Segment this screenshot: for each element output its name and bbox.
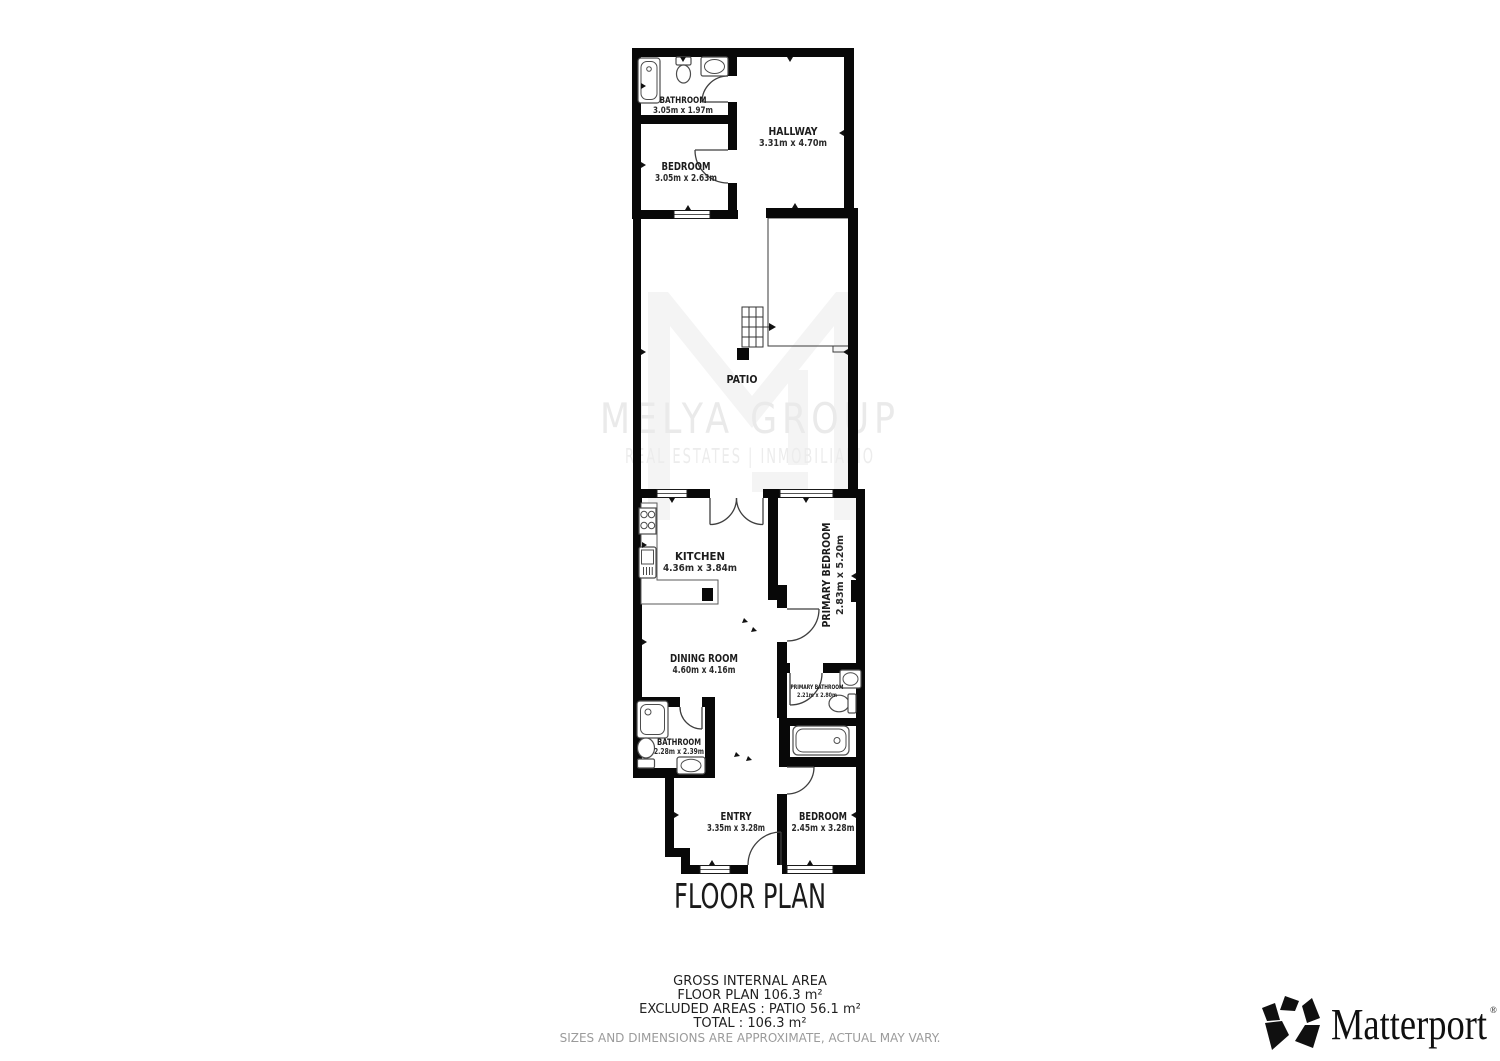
room-label-primary-bedroom: PRIMARY BEDROOM 2.83m x 5.20m — [820, 523, 846, 628]
matterport-pinwheel-icon — [1262, 996, 1320, 1050]
room-label-bedroom-lower: BEDROOM 2.45m x 3.28m — [792, 810, 855, 834]
svg-text:PRIMARY BATHROOM: PRIMARY BATHROOM — [791, 683, 844, 691]
door-entry — [748, 832, 781, 865]
room-label-hallway: HALLWAY 3.31m x 4.70m — [759, 125, 827, 149]
upper-unit-walls — [632, 48, 854, 219]
page-title: FLOOR PLAN — [674, 877, 826, 917]
matterport-logo: Matterport ® — [1262, 996, 1497, 1050]
kitchen-column — [702, 588, 713, 601]
summary-gross-internal-area: GROSS INTERNAL AREA — [673, 974, 827, 989]
door-lower-bathroom — [680, 707, 702, 729]
room-label-patio: PATIO — [727, 373, 758, 386]
shower-icon — [637, 701, 668, 738]
svg-text:BEDROOM: BEDROOM — [799, 810, 847, 823]
room-label-bathroom-top: BATHROOM 3.05m x 1.97m — [653, 96, 713, 116]
room-label-dining-room: DINING ROOM 4.60m x 4.16m — [670, 652, 738, 676]
stairs — [737, 307, 776, 360]
matterport-wordmark: Matterport — [1331, 1000, 1487, 1049]
svg-text:PRIMARY BEDROOM: PRIMARY BEDROOM — [820, 523, 833, 628]
svg-text:3.05m x 1.97m: 3.05m x 1.97m — [653, 106, 713, 116]
stairs-direction-arrow — [769, 323, 776, 331]
stove-icon — [639, 508, 656, 534]
svg-text:4.36m x 3.84m: 4.36m x 3.84m — [663, 563, 737, 574]
svg-text:2.28m x 2.39m: 2.28m x 2.39m — [654, 747, 704, 756]
toilet-icon — [638, 738, 655, 768]
area-summary: GROSS INTERNAL AREA FLOOR PLAN 106.3 m² … — [560, 974, 941, 1045]
stairs-landing-post — [737, 348, 749, 360]
door-french-right — [737, 498, 764, 525]
room-label-bathroom-lower: BATHROOM 2.28m x 2.39m — [654, 738, 704, 756]
room-label-kitchen: KITCHEN 4.36m x 3.84m — [663, 550, 737, 574]
door-lower-bedroom — [787, 767, 814, 794]
window-kitchen — [657, 490, 687, 498]
summary-disclaimer: SIZES AND DIMENSIONS ARE APPROXIMATE, AC… — [560, 1031, 941, 1045]
window-primary-bedroom — [780, 490, 833, 498]
registered-trademark-icon: ® — [1490, 1005, 1497, 1015]
svg-text:2.45m x 3.28m: 2.45m x 3.28m — [792, 823, 855, 834]
svg-text:3.05m x 2.63m: 3.05m x 2.63m — [655, 173, 717, 184]
window-bedroom-lower — [787, 866, 833, 874]
svg-text:BEDROOM: BEDROOM — [662, 160, 711, 173]
svg-text:2.21m x 2.80m: 2.21m x 2.80m — [797, 692, 837, 699]
svg-text:ENTRY: ENTRY — [721, 810, 753, 823]
room-label-entry: ENTRY 3.35m x 3.28m — [707, 810, 765, 834]
floor-plan-page: MELYA GROUP REAL ESTATES | INMOBILIARIO — [0, 0, 1500, 1061]
svg-text:PATIO: PATIO — [727, 373, 758, 386]
svg-text:3.35m x 3.28m: 3.35m x 3.28m — [707, 823, 765, 834]
svg-text:2.83m x 5.20m: 2.83m x 5.20m — [835, 535, 846, 615]
bathtub-icon — [638, 58, 660, 103]
svg-text:KITCHEN: KITCHEN — [675, 550, 725, 563]
window-entry — [700, 866, 730, 874]
sink-icon — [701, 57, 728, 76]
door-french-left — [710, 498, 737, 525]
summary-total: TOTAL : 106.3 m² — [692, 1016, 806, 1031]
svg-text:HALLWAY: HALLWAY — [769, 125, 819, 138]
summary-floor-plan-area: FLOOR PLAN 106.3 m² — [677, 988, 822, 1003]
svg-text:3.31m x 4.70m: 3.31m x 4.70m — [759, 138, 827, 149]
kitchen-sink-icon — [639, 547, 656, 578]
door-primary-bedroom — [787, 609, 819, 641]
room-label-bedroom-top: BEDROOM 3.05m x 2.63m — [655, 160, 717, 184]
watermark-tagline: REAL ESTATES | INMOBILIARIO — [625, 444, 875, 468]
sink-icon — [677, 757, 705, 774]
svg-text:BATHROOM: BATHROOM — [660, 96, 707, 106]
summary-excluded-areas: EXCLUDED AREAS : PATIO 56.1 m² — [639, 1002, 861, 1017]
bathtub-icon — [793, 726, 849, 755]
svg-text:DINING ROOM: DINING ROOM — [670, 652, 738, 665]
svg-text:4.60m x 4.16m: 4.60m x 4.16m — [673, 665, 736, 676]
window-bedroom-top — [674, 211, 710, 219]
